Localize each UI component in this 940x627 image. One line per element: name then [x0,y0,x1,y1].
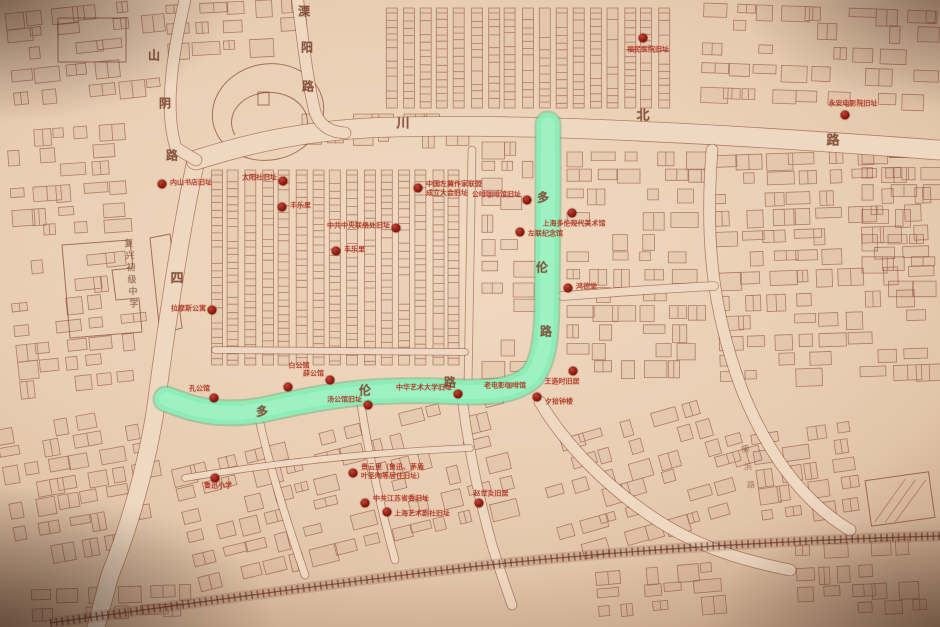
shanyin-road-char: 路 [166,147,178,164]
landmark-dot [564,284,573,293]
landmark-label: 中共中央联络处旧址 [327,221,390,230]
landmark-dot [414,184,423,193]
duolun-road-north-segment-char: 多 [537,189,549,206]
map-photo: 山阴路溧阳路川北路四多伦路多伦路横浜路复兴初级中学内山书店旧址太阳社旧址丰乐里丰… [0,0,940,627]
landmark-label: 鸿德堂 [576,282,597,291]
landmark-label: 景云里（鲁迅、茅盾 叶圣陶等居住旧址） [361,463,424,481]
landmark-dot [284,383,293,392]
landmark-label: 汤公馆旧址 [327,395,362,404]
hengbang-road-char: 浜 [744,462,752,473]
landmark-label: 福民医院旧址 [627,45,669,54]
landmark-dot [533,393,542,402]
landmark-dot [516,228,525,237]
landmark-label: 中共江苏省委旧址 [373,494,429,503]
landmark-dot [210,394,219,403]
landmark-dot [383,508,392,517]
landmark-label: 太阳社旧址 [242,173,277,182]
landmark-dot [568,209,577,218]
landmark-dot [639,34,648,43]
shanyin-road-char: 山 [148,47,160,64]
liyang-road-char: 溧 [298,3,310,20]
hengbang-road-char: 路 [747,480,755,491]
landmark-label: 鲁迅小学 [204,481,232,490]
landmark-dot [332,247,341,256]
liyang-road-char: 阳 [301,39,313,56]
landmark-label: 拉摩斯公寓 [171,304,206,313]
landmark-label: 夕拾钟楼 [545,397,573,406]
landmark-label: 孔公馆 [189,384,210,393]
landmark-label: 中华艺术大学旧址 [396,383,452,392]
landmark-label: 永安电影院旧址 [829,99,878,108]
map-label-layer: 山阴路溧阳路川北路四多伦路多伦路横浜路复兴初级中学内山书店旧址太阳社旧址丰乐里丰… [0,0,940,627]
landmark-dot [841,111,850,120]
landmark-label: 内山书店旧址 [170,178,212,187]
landmark-label: 左联纪念馆 [528,229,563,238]
landmark-dot [326,376,335,385]
sichuan-north-road-west-char: 四 [170,268,183,287]
landmark-dot [279,177,288,186]
landmark-dot [364,401,373,410]
landmark-label: 丰乐里 [290,201,311,210]
landmark-dot [392,224,401,233]
landmark-dot [208,306,217,315]
liyang-road-char: 路 [302,78,314,95]
landmark-dot [569,367,578,376]
landmark-label: 上海艺术剧社旧址 [394,509,450,518]
landmark-dot [523,196,532,205]
sichuan-north-road-top-char: 路 [826,130,839,149]
hengbang-road-char: 横 [741,444,749,455]
landmark-label: 王造时旧居 [545,377,580,386]
landmark-dot [349,469,358,478]
landmark-dot [158,180,167,189]
landmark-label: 赵世炎旧居 [474,489,509,498]
shanyin-road-char: 阴 [159,95,171,112]
landmark-label: 公啡咖啡馆旧址 [472,190,521,199]
duolun-road-north-segment-char: 伦 [536,259,548,276]
landmark-dot [361,499,370,508]
landmark-label: 薛公馆 [303,369,324,378]
landmark-dot [454,390,463,399]
duolun-road-north-segment-char: 路 [540,323,552,340]
fuxing-junior-high-school-char: 学 [129,297,138,310]
landmark-dot [475,499,484,508]
landmark-label: 老电影咖啡馆 [484,381,526,390]
landmark-label: 丰乐里 [344,245,365,254]
landmark-label: 上海多伦现代美术馆 [543,219,606,228]
sichuan-north-road-top-char: 北 [636,105,649,124]
landmark-dot [278,203,287,212]
sichuan-north-road-top-char: 川 [396,113,409,132]
duolun-road-west-segment-char: 多 [256,403,268,420]
